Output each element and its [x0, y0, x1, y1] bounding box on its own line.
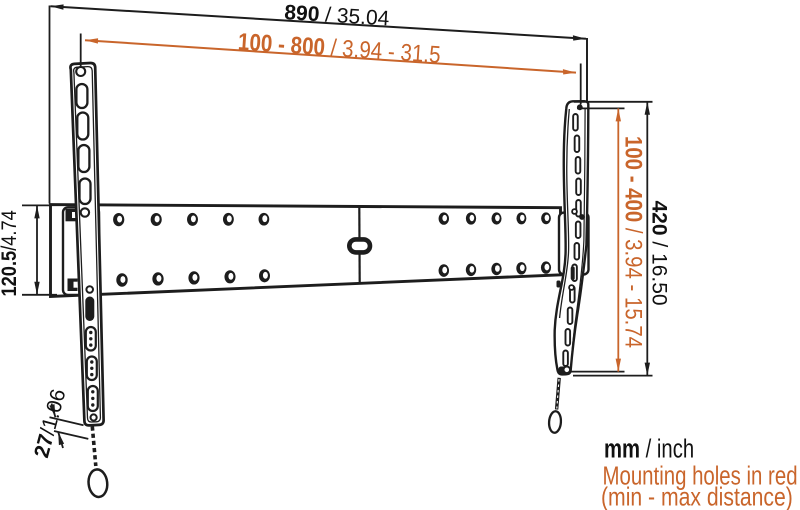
svg-text:mm / inch: mm / inch — [604, 434, 694, 463]
svg-text:100 - 800 / 3.94 - 31.5: 100 - 800 / 3.94 - 31.5 — [237, 28, 441, 68]
svg-text:890 / 35.04: 890 / 35.04 — [284, 1, 391, 30]
svg-text:420 / 16.50: 420 / 16.50 — [648, 201, 671, 306]
svg-text:(min - max distance): (min - max distance) — [601, 484, 793, 510]
svg-text:120.5/4.74: 120.5/4.74 — [0, 210, 21, 296]
svg-text:100 - 400 / 3.94 - 15.74: 100 - 400 / 3.94 - 15.74 — [620, 136, 647, 348]
svg-text:27/1.06: 27/1.06 — [30, 387, 70, 461]
